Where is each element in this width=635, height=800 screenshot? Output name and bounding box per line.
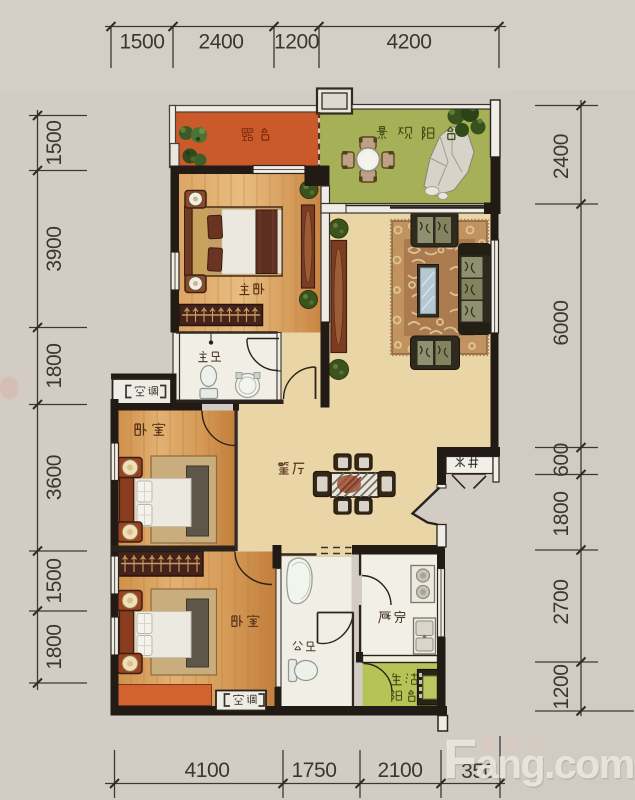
svg-text:2400: 2400 bbox=[198, 31, 243, 54]
svg-text:1200: 1200 bbox=[274, 31, 319, 54]
svg-text:2700: 2700 bbox=[550, 579, 573, 624]
svg-text:2100: 2100 bbox=[377, 759, 422, 782]
svg-text:1500: 1500 bbox=[43, 120, 66, 165]
svg-text:2400: 2400 bbox=[550, 134, 573, 179]
svg-text:1500: 1500 bbox=[119, 31, 164, 54]
svg-text:6000: 6000 bbox=[550, 300, 573, 345]
svg-text:600: 600 bbox=[550, 443, 573, 477]
svg-text:3900: 3900 bbox=[43, 226, 66, 271]
svg-text:4100: 4100 bbox=[184, 759, 229, 782]
svg-text:1800: 1800 bbox=[550, 491, 573, 536]
svg-text:1750: 1750 bbox=[291, 759, 336, 782]
svg-text:4200: 4200 bbox=[386, 31, 431, 54]
svg-text:1200: 1200 bbox=[550, 664, 573, 709]
svg-text:1800: 1800 bbox=[43, 624, 66, 669]
svg-text:1500: 1500 bbox=[43, 558, 66, 603]
svg-text:3600: 3600 bbox=[43, 455, 66, 500]
svg-text:1800: 1800 bbox=[43, 343, 66, 388]
